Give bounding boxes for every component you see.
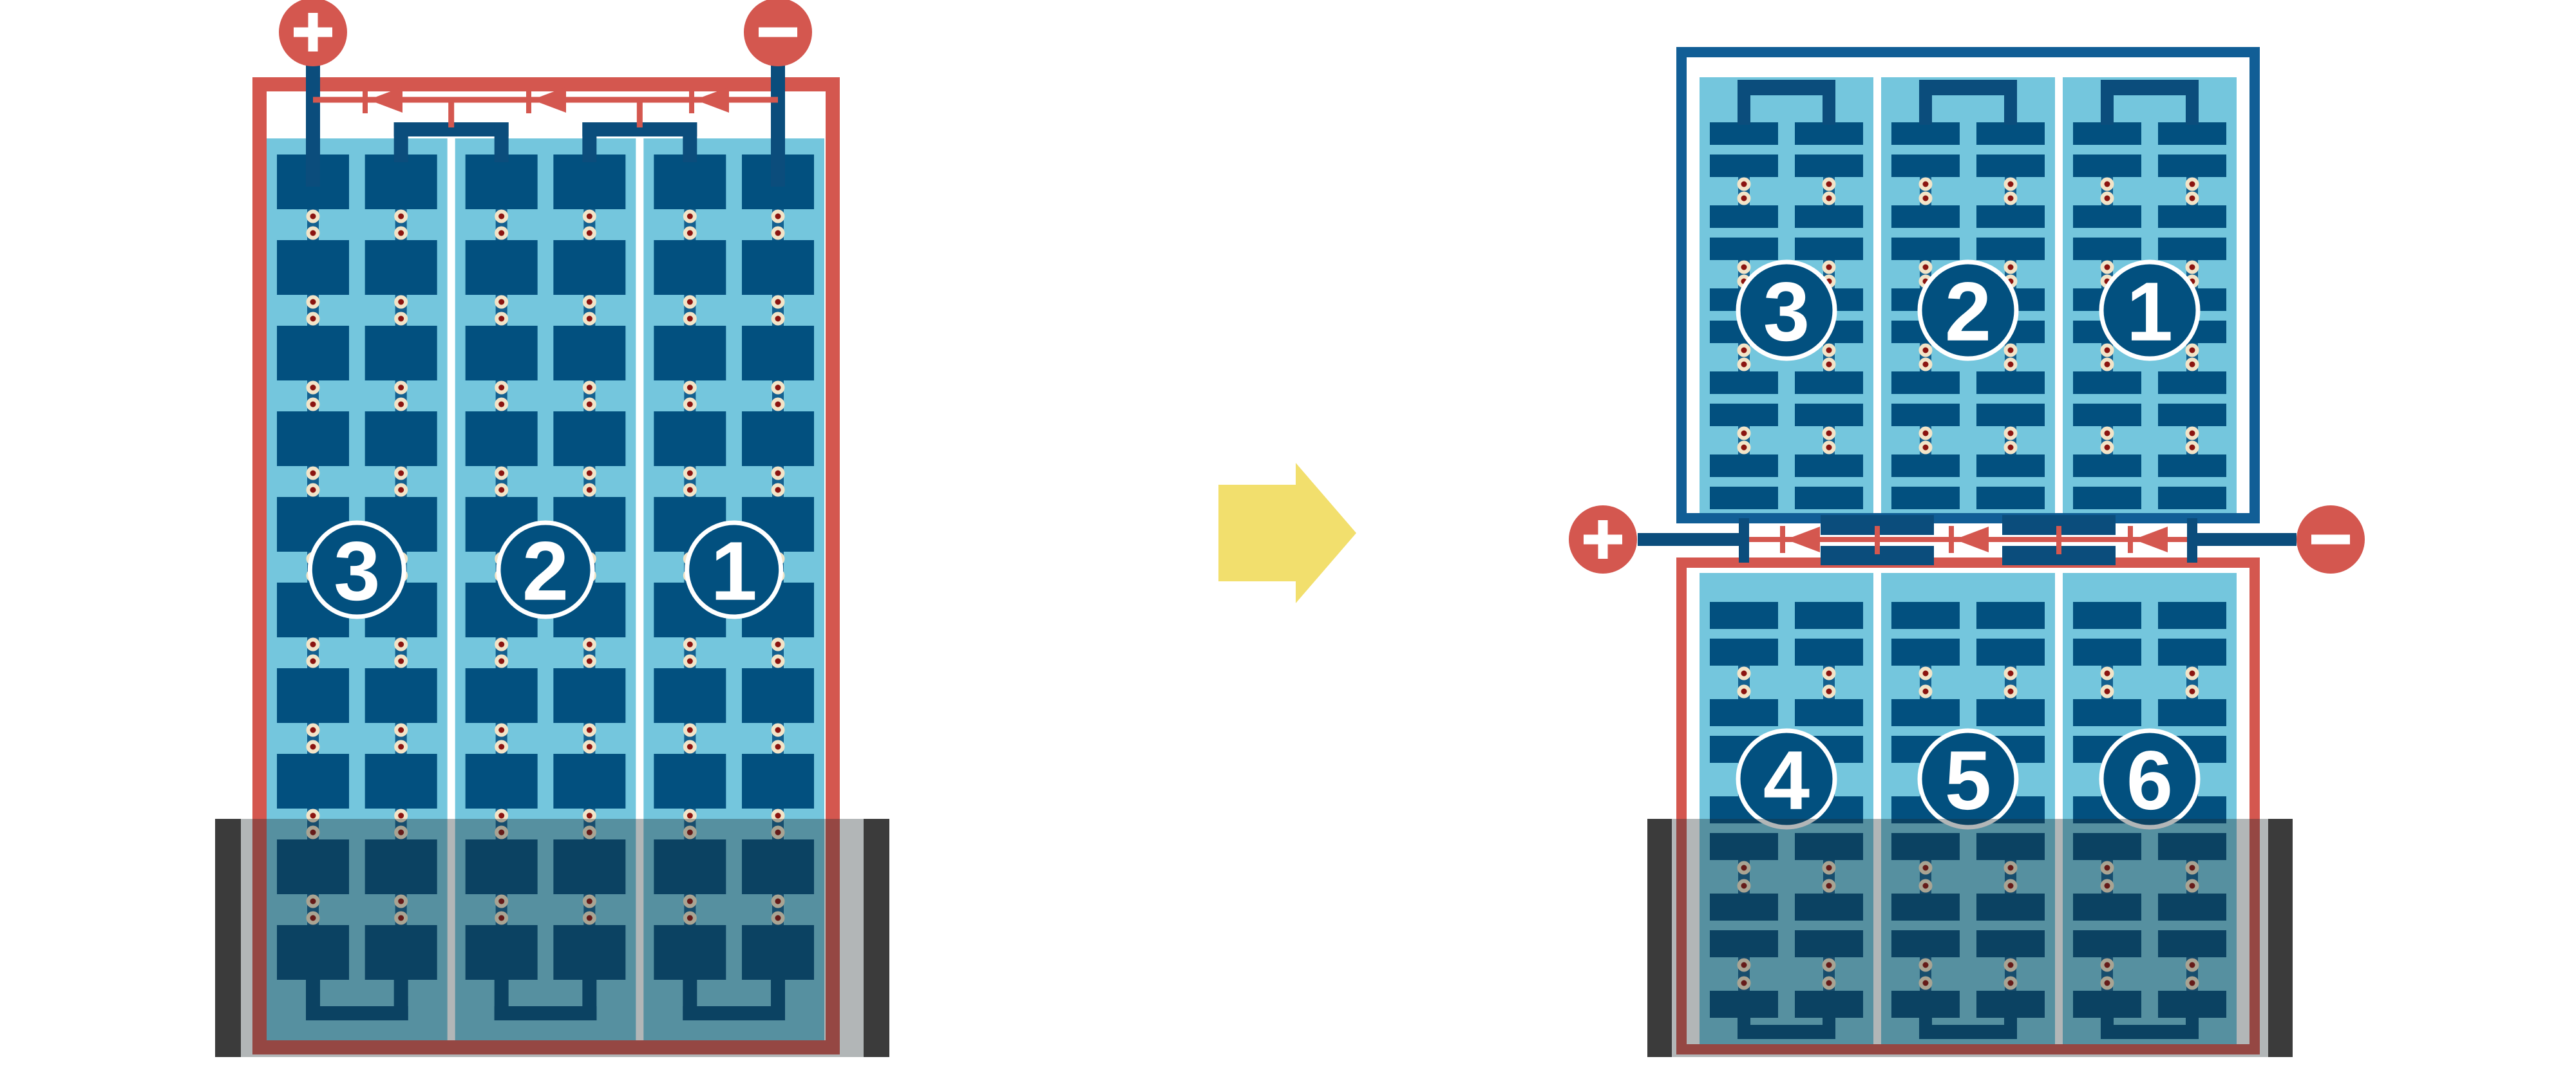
solder-dot <box>2186 178 2199 191</box>
solar-cell <box>1710 371 1778 394</box>
solar-cell <box>1795 205 1863 228</box>
solder-dot-inner <box>587 214 592 220</box>
solder-dot <box>683 295 697 309</box>
solder-dot <box>1919 427 1933 440</box>
solder-dot <box>583 227 596 240</box>
string-jumper-leg <box>2101 80 2114 125</box>
solder-dot-inner <box>2008 265 2014 270</box>
solder-dot-inner <box>687 316 693 322</box>
solder-dot-inner <box>587 299 592 305</box>
solder-dot-inner <box>1741 265 1747 270</box>
solar-cell <box>1976 404 2045 426</box>
solder-dot-inner <box>687 230 693 236</box>
solder-dot-inner <box>498 813 504 819</box>
solder-dot <box>2186 192 2199 205</box>
string-jumper-bar <box>1919 80 2017 95</box>
solder-dot <box>583 467 596 480</box>
solder-dot-inner <box>587 385 592 391</box>
solder-dot-inner <box>1826 265 1832 270</box>
solar-cell <box>1795 238 1863 260</box>
solar-cell <box>2158 205 2226 228</box>
solar-cell <box>2158 487 2226 509</box>
solder-dot-inner <box>310 659 316 664</box>
solder-dot-inner <box>587 813 592 819</box>
solar-cell <box>1710 602 1778 629</box>
solder-dot <box>495 295 508 309</box>
solar-cell <box>1976 238 2045 260</box>
solder-dot <box>1738 178 1751 191</box>
string-label: 6 <box>2101 731 2198 827</box>
solder-dot <box>1738 344 1751 357</box>
solar-cell <box>553 411 625 466</box>
solder-dot <box>495 398 508 411</box>
solder-dot-inner <box>587 487 592 493</box>
solder-dot-inner <box>1826 445 1832 451</box>
solar-cell <box>742 668 814 723</box>
solder-dot-inner <box>2008 671 2014 677</box>
positive-wire <box>1638 533 1749 546</box>
solder-dot-inner <box>687 299 693 305</box>
solder-dot-inner <box>2105 265 2110 270</box>
solder-dot-inner <box>1826 196 1832 201</box>
solder-dot <box>1823 178 1836 191</box>
solder-dot <box>307 483 320 497</box>
solar-cell <box>277 240 349 295</box>
solder-dot-inner <box>2190 671 2195 677</box>
diode-bus-stub <box>2056 526 2061 554</box>
solder-dot <box>2004 441 2018 454</box>
solar-cell <box>1891 487 1960 509</box>
solder-dot-inner <box>310 727 316 733</box>
solar-cell <box>742 411 814 466</box>
solder-dot-inner <box>398 214 404 220</box>
solder-dot-inner <box>1923 348 1929 353</box>
solder-dot-inner <box>1741 431 1747 436</box>
bypass-diode-bus <box>313 86 778 127</box>
solar-cell <box>1795 602 1863 629</box>
solder-dot-inner <box>398 402 404 408</box>
solder-dot-inner <box>1826 362 1832 368</box>
positive-terminal <box>279 0 347 66</box>
solar-cell <box>365 411 437 466</box>
solder-dot <box>495 381 508 395</box>
solder-dot <box>583 740 596 754</box>
solder-dot <box>583 398 596 411</box>
string-label: 4 <box>1738 731 1835 827</box>
symbol-bar-h <box>759 28 797 37</box>
solder-dot <box>683 740 697 754</box>
solder-dot-inner <box>2105 689 2110 695</box>
string-jumper-leg <box>495 122 509 162</box>
solder-dot-inner <box>687 214 693 220</box>
solder-dot <box>2101 685 2114 698</box>
solder-dot-inner <box>2008 431 2014 436</box>
solar-cell <box>466 411 538 466</box>
solder-dot-inner <box>1741 182 1747 187</box>
solder-dot-inner <box>498 642 504 648</box>
solder-dot <box>2004 427 2018 440</box>
solar-cell <box>2158 155 2226 177</box>
solder-dot-inner <box>498 659 504 664</box>
solder-dot <box>1919 667 1933 680</box>
minus-icon <box>2311 535 2350 545</box>
shade-overlay <box>215 819 889 1057</box>
right-module: 321456 <box>1569 52 2365 1057</box>
solder-dot-inner <box>2190 196 2195 201</box>
solder-dot <box>772 227 785 240</box>
solder-dot <box>1738 685 1751 698</box>
solder-dot <box>583 655 596 668</box>
negative-terminal <box>2297 505 2365 574</box>
solder-dot <box>772 381 785 395</box>
shade-bar <box>2268 819 2293 1057</box>
solder-dot-inner <box>1741 196 1747 201</box>
solder-dot-inner <box>1741 445 1747 451</box>
solder-dot-inner <box>310 642 316 648</box>
solar-cell <box>277 754 349 809</box>
solder-dot <box>2101 178 2114 191</box>
solder-dot <box>683 381 697 395</box>
solder-dot-inner <box>310 487 316 493</box>
shade-overlay <box>1647 819 2293 1057</box>
diode-bus-stub <box>637 100 643 127</box>
solder-dot <box>772 210 785 223</box>
solar-cell <box>1795 122 1863 145</box>
solder-dot-inner <box>310 471 316 476</box>
solar-cell <box>654 411 726 466</box>
diode-bus-stub <box>448 100 454 127</box>
solar-cell <box>2073 602 2141 629</box>
solder-dot-inner <box>1923 431 1929 436</box>
solar-cell <box>2158 454 2226 477</box>
solder-dot-inner <box>775 659 781 664</box>
symbol-bar-v <box>1598 520 1608 559</box>
solder-dot-inner <box>1826 348 1832 353</box>
solder-dot <box>2004 358 2018 371</box>
solder-dot <box>1738 358 1751 371</box>
solder-dot <box>1919 441 1933 454</box>
solder-dot <box>394 740 408 754</box>
solder-dot-inner <box>2008 348 2014 353</box>
diagram-canvas: 321321456 <box>0 0 2576 1068</box>
solder-dot-inner <box>310 230 316 236</box>
solar-cell <box>1795 454 1863 477</box>
solder-dot <box>1738 667 1751 680</box>
solder-dot-inner <box>2190 362 2195 368</box>
solar-cell <box>466 240 538 295</box>
solder-dot-inner <box>587 744 592 750</box>
solder-dot-inner <box>687 813 693 819</box>
solder-dot-inner <box>2105 182 2110 187</box>
solder-dot <box>1823 427 1836 440</box>
solder-dot <box>495 724 508 737</box>
diode-bus-stub <box>1875 526 1880 554</box>
solder-dot-inner <box>2190 265 2195 270</box>
solar-cell <box>1891 602 1960 629</box>
solder-dot <box>772 312 785 326</box>
solar-cell <box>1891 122 1960 145</box>
solder-dot <box>683 312 697 326</box>
bypass-diode-icon <box>1949 526 1989 553</box>
solder-dot <box>307 724 320 737</box>
solder-dot-inner <box>1826 689 1832 695</box>
positive-wire <box>306 58 320 187</box>
solar-cell <box>365 668 437 723</box>
solder-dot-inner <box>687 642 693 648</box>
shade-region <box>215 819 889 1057</box>
solder-dot-inner <box>775 385 781 391</box>
solder-dot-inner <box>2190 445 2195 451</box>
solder-dot <box>1823 685 1836 698</box>
solder-dot <box>307 655 320 668</box>
solar-cell <box>2158 122 2226 145</box>
solder-dot <box>2004 667 2018 680</box>
minus-icon <box>759 28 797 37</box>
diode-cathode-bar <box>1780 526 1785 553</box>
solder-dot <box>394 210 408 223</box>
solder-dot-inner <box>587 659 592 664</box>
solder-dot-inner <box>498 385 504 391</box>
solder-dot-inner <box>398 316 404 322</box>
solder-dot-inner <box>775 230 781 236</box>
solder-dot <box>307 398 320 411</box>
solder-dot-inner <box>1741 362 1747 368</box>
solder-dot-inner <box>1923 362 1929 368</box>
solar-cell <box>654 326 726 380</box>
shade-region <box>1647 819 2293 1057</box>
solder-dot <box>772 638 785 651</box>
solder-dot <box>772 655 785 668</box>
solar-cell <box>466 668 538 723</box>
string-label-text: 4 <box>1763 733 1810 827</box>
solder-dot-inner <box>687 659 693 664</box>
solder-dot <box>2186 261 2199 274</box>
solder-dot <box>1823 358 1836 371</box>
solar-cell <box>1976 371 2045 394</box>
solar-cell <box>553 754 625 809</box>
solder-dot-inner <box>2190 348 2195 353</box>
solder-dot <box>2004 344 2018 357</box>
solder-dot-inner <box>687 385 693 391</box>
solder-dot-inner <box>687 744 693 750</box>
solder-dot-inner <box>498 487 504 493</box>
solder-dot-inner <box>775 402 781 408</box>
solar-cell <box>1795 404 1863 426</box>
solder-dot <box>495 638 508 651</box>
solar-cell <box>553 155 625 209</box>
solder-dot <box>394 295 408 309</box>
solder-dot <box>2004 178 2018 191</box>
solder-dot-inner <box>775 316 781 322</box>
solder-dot <box>307 638 320 651</box>
solar-cell <box>654 668 726 723</box>
solder-dot <box>1919 192 1933 205</box>
solar-cell <box>2158 371 2226 394</box>
solder-dot <box>583 638 596 651</box>
diode-cathode-bar <box>2128 526 2133 553</box>
solder-dot-inner <box>587 402 592 408</box>
solder-dot <box>1823 344 1836 357</box>
string-jumper-bar <box>1738 80 1835 95</box>
solder-dot <box>307 312 320 326</box>
solar-cell <box>1710 155 1778 177</box>
solder-dot-inner <box>2105 445 2110 451</box>
solder-dot-inner <box>775 727 781 733</box>
solder-dot <box>495 312 508 326</box>
solder-dot <box>583 210 596 223</box>
solder-dot-inner <box>398 813 404 819</box>
solder-dot <box>683 398 697 411</box>
solder-dot-inner <box>1826 431 1832 436</box>
solder-dot-inner <box>1741 348 1747 353</box>
transition <box>1218 463 1356 603</box>
solder-dot <box>1823 441 1836 454</box>
solder-dot <box>583 295 596 309</box>
solder-dot-inner <box>687 402 693 408</box>
solar-cell <box>553 240 625 295</box>
solder-dot <box>2101 344 2114 357</box>
bypass-diode-bus <box>1746 526 2192 554</box>
solder-dot-inner <box>587 727 592 733</box>
solder-dot-inner <box>1923 265 1929 270</box>
solar-cell <box>466 326 538 380</box>
solder-dot <box>307 295 320 309</box>
solar-cell <box>2158 699 2226 726</box>
solar-cell <box>1976 699 2045 726</box>
solder-dot-inner <box>398 487 404 493</box>
solder-dot <box>1919 358 1933 371</box>
solder-dot <box>2101 427 2114 440</box>
solder-dot <box>2004 685 2018 698</box>
solder-dot <box>2186 358 2199 371</box>
solder-dot <box>495 210 508 223</box>
solar-cell <box>1891 205 1960 228</box>
solder-dot-inner <box>498 402 504 408</box>
solder-dot-inner <box>498 299 504 305</box>
solder-dot <box>2101 261 2114 274</box>
string-label: 2 <box>498 523 592 618</box>
solar-cell <box>1976 487 2045 509</box>
solar-cell <box>2073 122 2141 145</box>
solder-dot <box>1919 344 1933 357</box>
solder-dot <box>772 295 785 309</box>
solder-dot <box>495 227 508 240</box>
solder-dot-inner <box>2008 362 2014 368</box>
solder-dot-inner <box>587 230 592 236</box>
solar-cell <box>2158 404 2226 426</box>
solder-dot <box>683 483 697 497</box>
solar-cell <box>742 240 814 295</box>
solder-dot-inner <box>2008 196 2014 201</box>
string-labels: 321 <box>310 523 781 618</box>
solder-dot-inner <box>398 727 404 733</box>
solar-cell <box>2073 371 2141 394</box>
solder-dot <box>2186 667 2199 680</box>
solder-dot-inner <box>1923 671 1929 677</box>
shade-bar <box>1647 819 1672 1057</box>
solder-dot <box>394 312 408 326</box>
string-label: 1 <box>2101 262 2198 359</box>
solar-cell <box>1710 487 1778 509</box>
solar-cell <box>277 326 349 380</box>
arrow-right-icon <box>1218 463 1356 603</box>
solder-dot <box>683 655 697 668</box>
solar-module-wiring-diagram: 321321456 <box>0 0 2576 1068</box>
solder-dot-inner <box>775 642 781 648</box>
solar-cell <box>1891 699 1960 726</box>
solder-dot <box>307 740 320 754</box>
string-jumper-leg <box>683 122 697 162</box>
solder-dot-inner <box>498 471 504 476</box>
solder-dot <box>307 467 320 480</box>
solder-dot-inner <box>398 385 404 391</box>
string-label-text: 2 <box>522 524 569 618</box>
string-label-text: 5 <box>1945 733 1991 827</box>
solder-dot <box>394 398 408 411</box>
symbol-bar-v <box>308 13 318 52</box>
solder-dot-inner <box>2105 362 2110 368</box>
solder-dot-inner <box>398 471 404 476</box>
solar-cell <box>466 754 538 809</box>
solder-dot-inner <box>398 230 404 236</box>
solder-dot <box>394 638 408 651</box>
solar-cell <box>1795 639 1863 666</box>
solder-dot-inner <box>775 744 781 750</box>
solder-dot-inner <box>2105 348 2110 353</box>
solder-dot <box>772 740 785 754</box>
solar-cell <box>1976 454 2045 477</box>
solder-dot-inner <box>1826 671 1832 677</box>
solder-dot <box>683 638 697 651</box>
solar-cell <box>365 155 437 209</box>
solder-dot-inner <box>775 813 781 819</box>
string-label: 5 <box>1920 731 2016 827</box>
solar-cell <box>1710 122 1778 145</box>
solar-cell <box>2158 602 2226 629</box>
diode-cathode-bar <box>1949 526 1954 553</box>
positive-terminal <box>1569 505 1637 574</box>
solder-dot <box>1738 192 1751 205</box>
solar-cell <box>1710 404 1778 426</box>
solar-cell <box>1891 404 1960 426</box>
solar-cell <box>2158 639 2226 666</box>
solar-cell <box>1891 238 1960 260</box>
solder-dot <box>2186 344 2199 357</box>
solar-cell <box>1710 699 1778 726</box>
solder-dot-inner <box>1826 182 1832 187</box>
solder-dot-inner <box>1923 445 1929 451</box>
solder-dot-inner <box>1741 689 1747 695</box>
solder-dot <box>394 724 408 737</box>
solder-dot-inner <box>587 642 592 648</box>
shade-bar <box>215 819 241 1057</box>
solder-dot <box>2101 441 2114 454</box>
solder-dot-inner <box>310 744 316 750</box>
solar-cell <box>1976 205 2045 228</box>
solar-cell <box>2158 238 2226 260</box>
solder-dot <box>394 483 408 497</box>
solder-dot <box>1823 667 1836 680</box>
solder-dot-inner <box>498 744 504 750</box>
bypass-diode-icon <box>2128 526 2168 553</box>
solder-dot <box>394 467 408 480</box>
solar-cell <box>553 668 625 723</box>
solar-cell <box>277 668 349 723</box>
solder-dot-inner <box>2008 182 2014 187</box>
solder-dot <box>1738 261 1751 274</box>
string-jumper-leg <box>1738 80 1750 125</box>
solar-cell <box>742 326 814 380</box>
